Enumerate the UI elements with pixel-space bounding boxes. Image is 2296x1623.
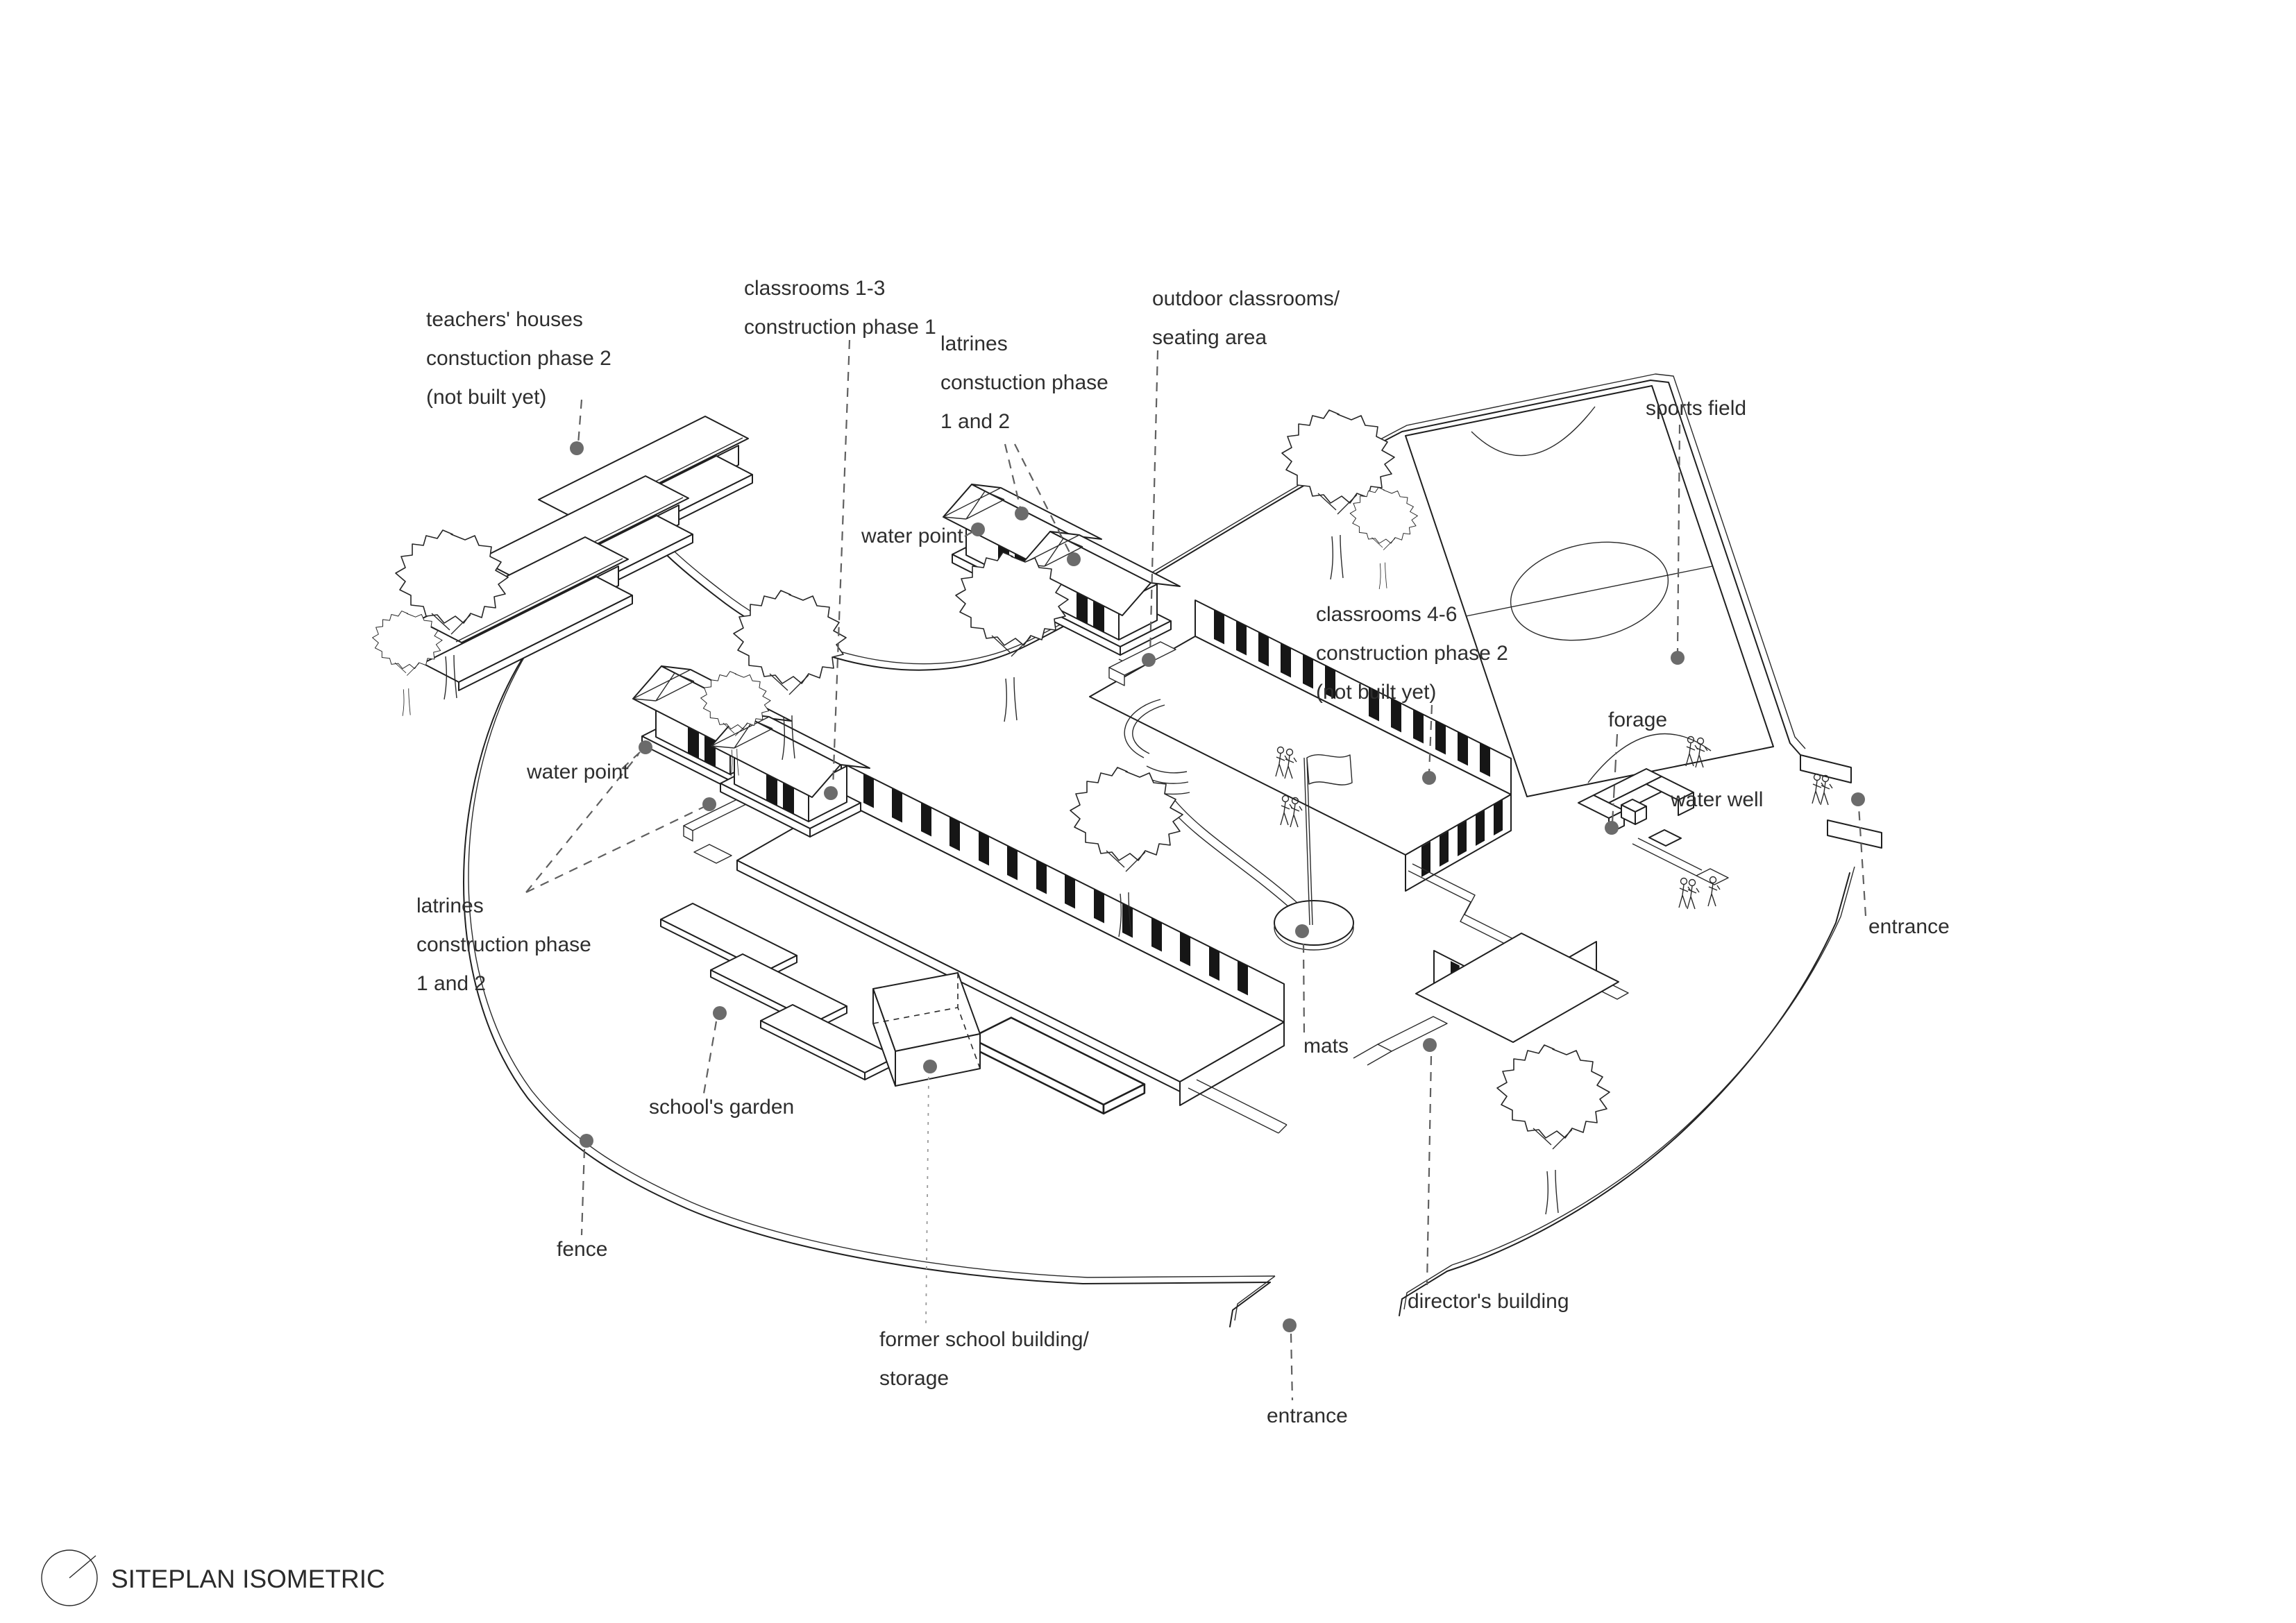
siteplan-canvas: teachers' houses constuction phase 2 (no… xyxy=(0,0,2296,1623)
mats-circle xyxy=(1274,901,1353,945)
label-outdoor-classrooms-2: seating area xyxy=(1152,326,1267,349)
page-title: SITEPLAN ISOMETRIC xyxy=(111,1565,385,1593)
label-water-well: water well xyxy=(1670,788,1763,811)
north-indicator-needle xyxy=(69,1556,96,1578)
label-mats: mats xyxy=(1303,1035,1349,1057)
siteplan-page: teachers' houses constuction phase 2 (no… xyxy=(0,0,2296,1623)
label-classrooms-4-6-3: (not built yet) xyxy=(1316,681,1436,704)
label-directors-building: director's building xyxy=(1408,1290,1569,1313)
label-sports-field: sports field xyxy=(1646,397,1746,420)
label-forage: forage xyxy=(1608,708,1667,731)
label-latrines-left: latrines xyxy=(416,894,484,917)
label-classrooms-4-6: classrooms 4-6 xyxy=(1316,603,1457,626)
label-entrance-right: entrance xyxy=(1868,915,1950,938)
label-latrines-left-2: construction phase xyxy=(416,933,591,956)
directors-walkway xyxy=(1378,1017,1447,1051)
label-entrance-bottom: entrance xyxy=(1267,1404,1348,1427)
label-teachers-houses: teachers' houses xyxy=(426,308,583,331)
label-teachers-houses-2: constuction phase 2 xyxy=(426,347,611,370)
stepped-path xyxy=(1166,798,1297,908)
label-latrines-top-2: constuction phase xyxy=(940,371,1108,394)
label-water-point-center: water point xyxy=(861,525,963,547)
label-latrines-left-3: 1 and 2 xyxy=(416,972,486,995)
gate-bar-lower xyxy=(1827,820,1882,848)
water-well-group xyxy=(1578,769,1728,885)
label-classrooms-1-3: classrooms 1-3 xyxy=(744,277,885,300)
label-classrooms-4-6-2: construction phase 2 xyxy=(1316,642,1508,665)
gate-bar-upper xyxy=(1800,755,1851,783)
directors-building-group xyxy=(1353,933,1619,1065)
label-former-school: former school building/ xyxy=(879,1328,1089,1351)
label-water-point-left: water point xyxy=(526,760,629,783)
label-latrines-top: latrines xyxy=(940,332,1008,355)
title-block: SITEPLAN ISOMETRIC xyxy=(42,1550,385,1606)
label-schools-garden: school's garden xyxy=(649,1096,794,1119)
water-tank-box xyxy=(694,844,732,863)
label-fence: fence xyxy=(557,1238,607,1261)
label-teachers-houses-3: (not built yet) xyxy=(426,386,546,409)
label-outdoor-classrooms: outdoor classrooms/ xyxy=(1152,287,1340,310)
label-classrooms-1-3-2: construction phase 1 xyxy=(744,316,936,339)
label-latrines-top-3: 1 and 2 xyxy=(940,410,1010,433)
flag-pennant xyxy=(1307,755,1352,785)
label-former-school-2: storage xyxy=(879,1367,949,1390)
